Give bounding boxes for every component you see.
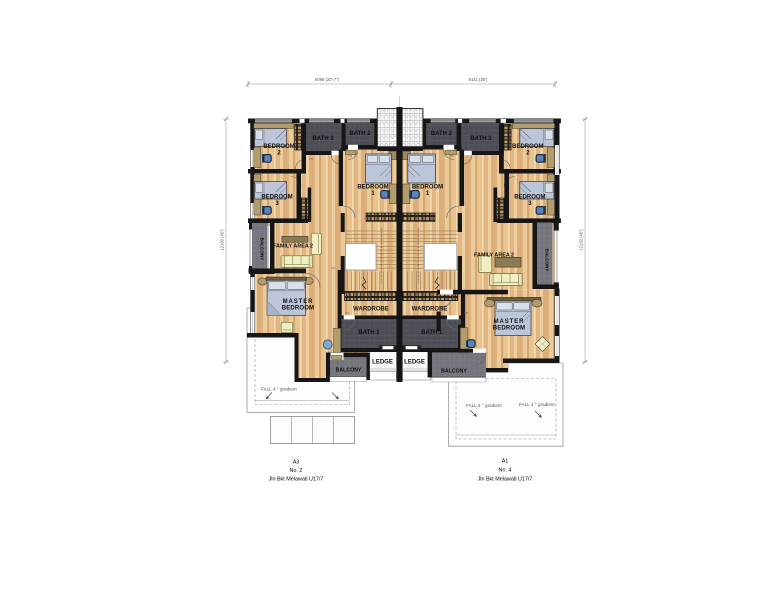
svg-text:No. 4: No. 4 xyxy=(499,468,512,474)
svg-text:BALCONY: BALCONY xyxy=(260,238,265,261)
svg-text:A1: A1 xyxy=(502,459,509,465)
svg-text:BALCONY: BALCONY xyxy=(545,249,550,272)
svg-text:12192 (40'): 12192 (40') xyxy=(220,229,225,251)
svg-text:No. 2: No. 2 xyxy=(290,468,303,474)
svg-text:BATH 2: BATH 2 xyxy=(349,131,371,137)
svg-text:750: 750 xyxy=(450,154,455,158)
svg-text:750: 750 xyxy=(331,266,336,270)
svg-text:BALCONY: BALCONY xyxy=(441,369,467,375)
svg-text:BEDROOM: BEDROOM xyxy=(261,195,292,201)
svg-text:BEDROOM: BEDROOM xyxy=(357,185,388,191)
svg-text:Jln Bkt Melawati U17/7: Jln Bkt Melawati U17/7 xyxy=(478,477,533,483)
svg-text:FALL 4 ° gradient: FALL 4 ° gradient xyxy=(466,403,502,408)
svg-text:BEDROOM: BEDROOM xyxy=(282,306,314,312)
svg-text:BEDROOM: BEDROOM xyxy=(263,144,294,150)
svg-text:BEDROOM: BEDROOM xyxy=(493,326,525,332)
svg-text:BEDROOM: BEDROOM xyxy=(412,185,443,191)
svg-text:LEDGE: LEDGE xyxy=(404,360,425,366)
svg-text:FALL 4 ° gradient: FALL 4 ° gradient xyxy=(261,387,297,392)
svg-text:FAMILY AREA 2: FAMILY AREA 2 xyxy=(273,244,313,250)
svg-text:750: 750 xyxy=(464,311,469,315)
svg-text:9141 (30'): 9141 (30') xyxy=(469,77,488,82)
svg-text:12192 (40'): 12192 (40') xyxy=(579,229,584,251)
svg-text:WARDROBE: WARDROBE xyxy=(353,307,389,313)
svg-text:BATH 2: BATH 2 xyxy=(431,131,453,137)
svg-text:6096 (20'-7"): 6096 (20'-7") xyxy=(315,77,340,82)
svg-text:750: 750 xyxy=(345,311,350,315)
svg-text:FAMILY AREA 2: FAMILY AREA 2 xyxy=(474,253,514,259)
svg-text:MASTER: MASTER xyxy=(494,319,525,325)
svg-text:A3: A3 xyxy=(293,460,300,466)
svg-text:Jln Bkt Melawati U17/7: Jln Bkt Melawati U17/7 xyxy=(269,477,324,483)
svg-text:BATH 1: BATH 1 xyxy=(358,330,380,336)
svg-text:BATH 1: BATH 1 xyxy=(421,330,443,336)
svg-text:BEDROOM: BEDROOM xyxy=(512,144,543,150)
svg-text:MASTER: MASTER xyxy=(283,299,314,305)
svg-text:BALCONY: BALCONY xyxy=(336,368,362,374)
svg-text:WARDROBE: WARDROBE xyxy=(412,307,448,313)
svg-text:LEDGE: LEDGE xyxy=(372,360,393,366)
svg-text:FALL 4 ° gradient: FALL 4 ° gradient xyxy=(519,402,555,407)
svg-text:BATH 3: BATH 3 xyxy=(470,136,492,142)
svg-text:750: 750 xyxy=(348,154,353,158)
svg-text:750: 750 xyxy=(309,157,314,161)
svg-text:BATH 3: BATH 3 xyxy=(312,136,334,142)
svg-text:BEDROOM: BEDROOM xyxy=(514,195,545,201)
